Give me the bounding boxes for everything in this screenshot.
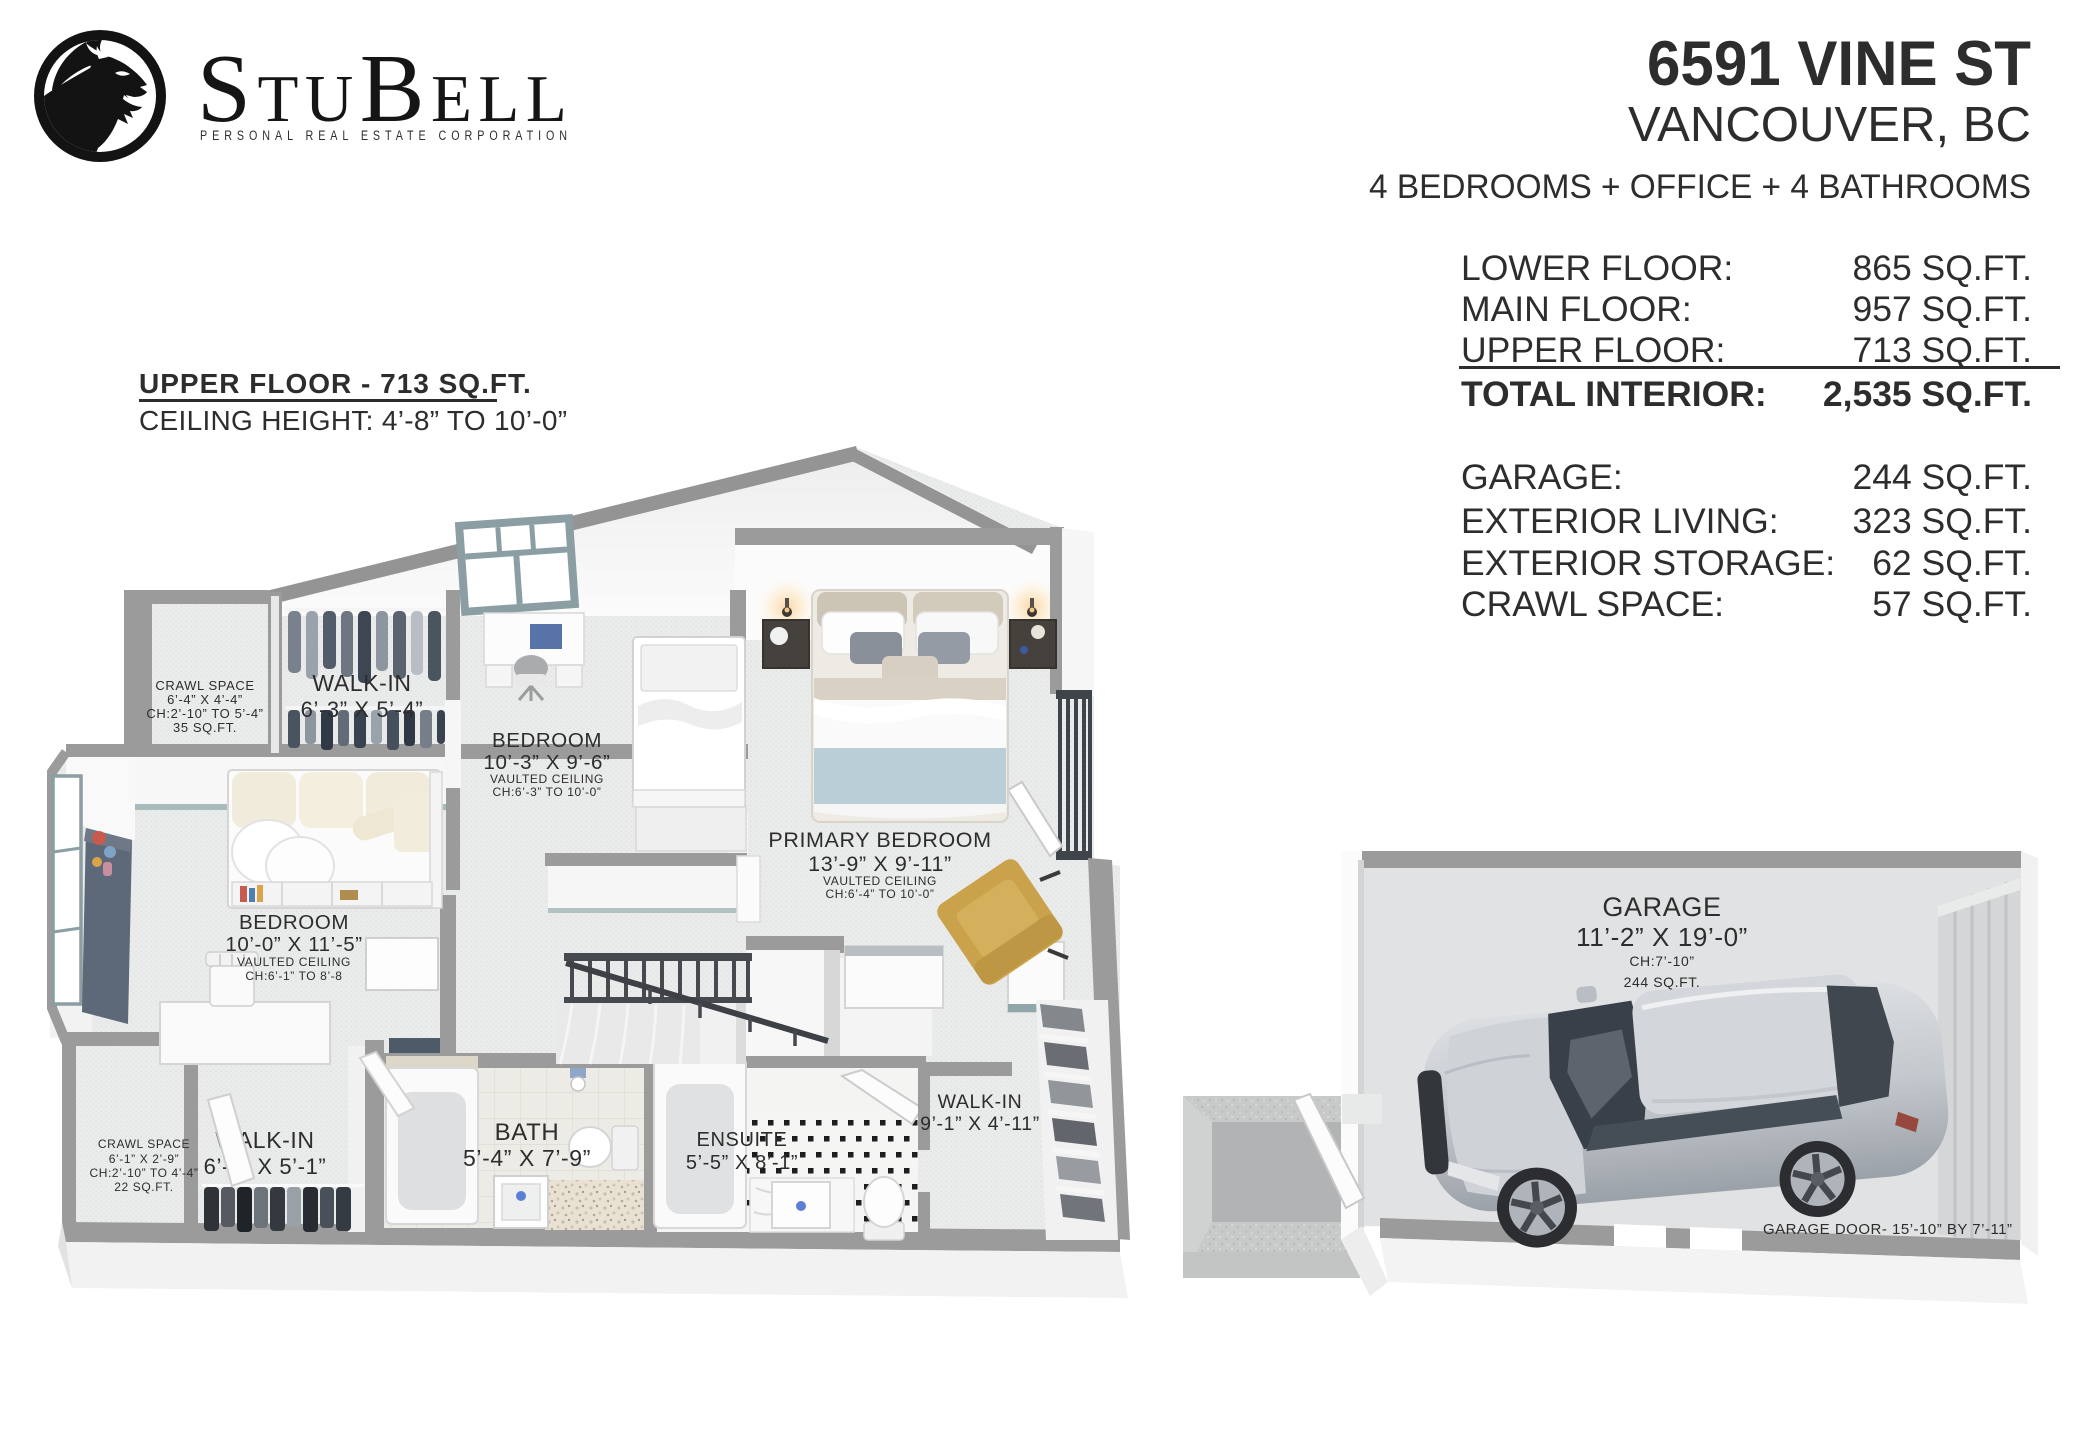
svg-text:22 SQ.FT.: 22 SQ.FT.: [114, 1180, 173, 1194]
svg-text:WALK-IN: WALK-IN: [938, 1091, 1023, 1113]
svg-text:EXTERIOR LIVING:: EXTERIOR LIVING:: [1461, 501, 1779, 541]
svg-text:11’-2” X 19’-0”: 11’-2” X 19’-0”: [1576, 922, 1748, 952]
svg-text:5’-5” X 8’-1”: 5’-5” X 8’-1”: [686, 1152, 798, 1174]
svg-text:UPPER FLOOR - 713 SQ.FT.: UPPER FLOOR - 713 SQ.FT.: [139, 368, 532, 399]
svg-text:CH:6’-3” TO 10’-0”: CH:6’-3” TO 10’-0”: [492, 785, 601, 799]
svg-text:10’-3” X 9’-6”: 10’-3” X 9’-6”: [484, 751, 611, 774]
svg-text:PRIMARY BEDROOM: PRIMARY BEDROOM: [768, 828, 991, 852]
svg-text:GARAGE: GARAGE: [1602, 892, 1721, 922]
svg-text:MAIN FLOOR:: MAIN FLOOR:: [1461, 289, 1692, 329]
svg-text:57 SQ.FT.: 57 SQ.FT.: [1872, 584, 2032, 624]
svg-text:6591 VINE ST: 6591 VINE ST: [1647, 29, 2031, 99]
svg-text:6’-0” X 5’-1”: 6’-0” X 5’-1”: [204, 1154, 327, 1179]
svg-text:ENSUITE: ENSUITE: [697, 1129, 788, 1151]
svg-text:CEILING HEIGHT: 4’-8” TO 10’-0: CEILING HEIGHT: 4’-8” TO 10’-0”: [139, 405, 567, 436]
svg-text:VANCOUVER, BC: VANCOUVER, BC: [1628, 98, 2031, 152]
svg-text:EXTERIOR STORAGE:: EXTERIOR STORAGE:: [1461, 543, 1835, 583]
svg-text:323 SQ.FT.: 323 SQ.FT.: [1852, 501, 2032, 541]
svg-text:VAULTED CEILING: VAULTED CEILING: [490, 772, 604, 786]
svg-text:6’-1” X 2’-9”: 6’-1” X 2’-9”: [109, 1152, 179, 1166]
svg-text:865 SQ.FT.: 865 SQ.FT.: [1852, 248, 2032, 288]
svg-text:244 SQ.FT.: 244 SQ.FT.: [1852, 457, 2032, 497]
svg-text:BEDROOM: BEDROOM: [492, 729, 602, 752]
svg-text:957 SQ.FT.: 957 SQ.FT.: [1852, 289, 2032, 329]
svg-text:62 SQ.FT.: 62 SQ.FT.: [1872, 543, 2032, 583]
svg-text:CH:2’-10” TO 5’-4”: CH:2’-10” TO 5’-4”: [146, 706, 263, 721]
svg-text:CH:7’-10”: CH:7’-10”: [1629, 953, 1694, 969]
svg-text:713 SQ.FT.: 713 SQ.FT.: [1852, 330, 2032, 370]
svg-text:PERSONAL REAL ESTATE CORPORATI: PERSONAL REAL ESTATE CORPORATION: [200, 128, 572, 143]
svg-text:GARAGE:: GARAGE:: [1461, 457, 1623, 497]
svg-text:CH:6’-4” TO 10’-0”: CH:6’-4” TO 10’-0”: [825, 887, 934, 901]
svg-text:13’-9” X 9’-11”: 13’-9” X 9’-11”: [808, 852, 952, 876]
svg-text:244 SQ.FT.: 244 SQ.FT.: [1624, 974, 1701, 990]
svg-text:UPPER FLOOR:: UPPER FLOOR:: [1461, 330, 1725, 370]
svg-text:6’-4” X 4’-4”: 6’-4” X 4’-4”: [167, 692, 243, 707]
svg-text:BATH: BATH: [495, 1119, 560, 1146]
svg-text:VAULTED CEILING: VAULTED CEILING: [823, 874, 937, 888]
svg-text:CH:2’-10” TO 4’-4”: CH:2’-10” TO 4’-4”: [89, 1166, 198, 1180]
svg-text:CRAWL SPACE: CRAWL SPACE: [98, 1137, 190, 1151]
svg-text:2,535 SQ.FT.: 2,535 SQ.FT.: [1823, 374, 2032, 414]
svg-text:35 SQ.FT.: 35 SQ.FT.: [173, 720, 237, 735]
svg-text:CH:6’-1” TO 8’-8: CH:6’-1” TO 8’-8: [245, 969, 342, 983]
svg-text:WALK-IN: WALK-IN: [312, 670, 411, 696]
svg-text:4 BEDROOMS + OFFICE + 4 BATHRO: 4 BEDROOMS + OFFICE + 4 BATHROOMS: [1369, 168, 2031, 206]
svg-text:BEDROOM: BEDROOM: [239, 911, 349, 934]
svg-text:VAULTED CEILING: VAULTED CEILING: [237, 955, 351, 969]
svg-text:TOTAL INTERIOR:: TOTAL INTERIOR:: [1461, 374, 1767, 414]
svg-text:10’-0” X 11’-5”: 10’-0” X 11’-5”: [225, 933, 362, 956]
svg-text:5’-4” X 7’-9”: 5’-4” X 7’-9”: [463, 1145, 591, 1171]
svg-text:GARAGE DOOR- 15’-10” BY 7’-11”: GARAGE DOOR- 15’-10” BY 7’-11”: [1763, 1221, 2013, 1238]
svg-text:9’-1” X 4’-11”: 9’-1” X 4’-11”: [920, 1113, 1040, 1135]
svg-text:CRAWL SPACE:: CRAWL SPACE:: [1461, 584, 1724, 624]
svg-text:CRAWL SPACE: CRAWL SPACE: [155, 678, 254, 693]
svg-text:LOWER FLOOR:: LOWER FLOOR:: [1461, 248, 1733, 288]
svg-text:6’-3” X 5’-4”: 6’-3” X 5’-4”: [301, 697, 424, 722]
